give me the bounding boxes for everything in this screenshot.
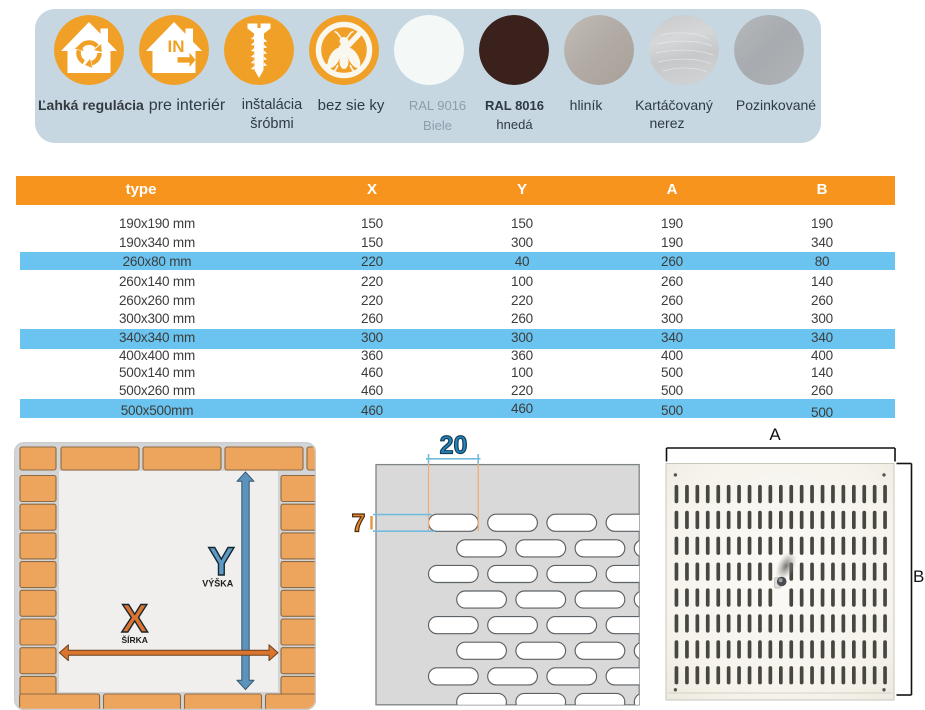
svg-text:VÝŠKA: VÝŠKA: [202, 578, 234, 589]
svg-text:IN: IN: [168, 37, 185, 56]
svg-text:7: 7: [352, 510, 366, 538]
svg-text:A: A: [769, 425, 781, 444]
svg-text:Y: Y: [208, 540, 235, 584]
svg-text:ŠÍRKA: ŠÍRKA: [121, 634, 147, 645]
svg-text:20: 20: [440, 432, 468, 460]
svg-text:B: B: [913, 567, 924, 586]
